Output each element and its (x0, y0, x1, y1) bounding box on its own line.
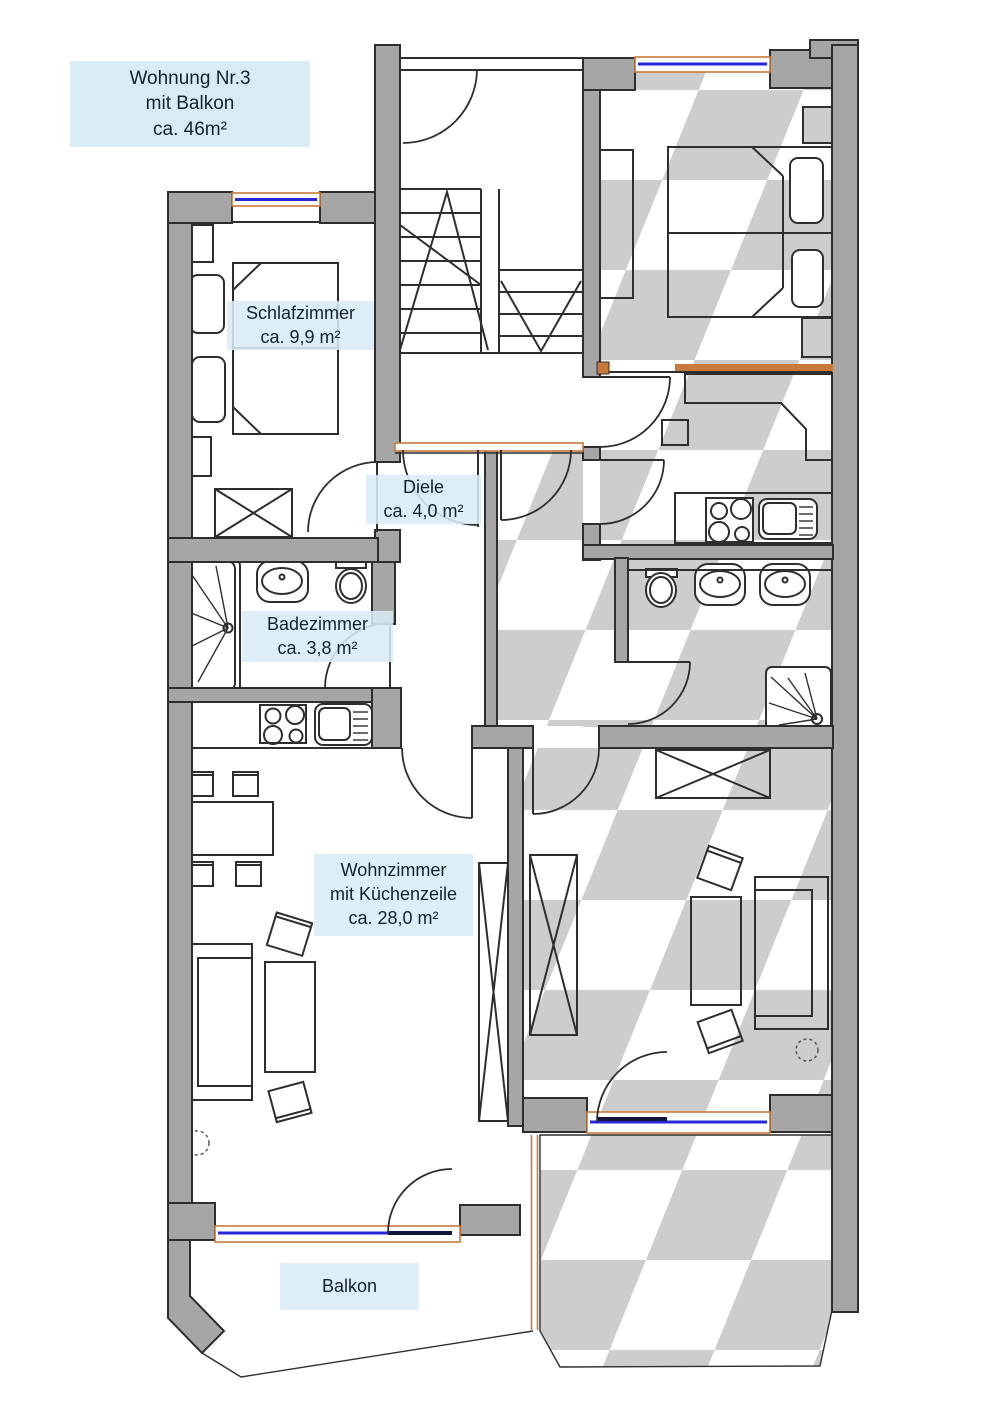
dining-table (180, 802, 273, 855)
toilet (336, 560, 366, 603)
sofa (183, 944, 252, 1100)
shower (766, 667, 831, 732)
room-name: Balkon (322, 1275, 377, 1299)
room-name-line2: mit Küchenzeile (330, 883, 457, 907)
room-name: Diele (403, 476, 444, 500)
room-label-badezimmer: Badezimmer ca. 3,8 m² (242, 611, 393, 662)
pillow (790, 158, 823, 223)
title-line-2: mit Balkon (146, 91, 235, 116)
apartment-divider-wall (485, 449, 497, 728)
room-name: Schlafzimmer (246, 302, 355, 326)
title-line-1: Wohnung Nr.3 (129, 66, 250, 91)
room-area: ca. 9,9 m² (260, 326, 340, 350)
stove (706, 498, 753, 542)
floor-plan: Wohnung Nr.3 mit Balkon ca. 46m² Schlafz… (0, 0, 992, 1403)
neighbor-balcony-window (587, 1112, 770, 1133)
schlafzimmer-bottom-wall (168, 538, 378, 562)
room-label-schlafzimmer: Schlafzimmer ca. 9,9 m² (227, 301, 374, 350)
nightstand (802, 318, 832, 357)
room-area: ca. 3,8 m² (277, 637, 357, 661)
pillow (190, 275, 224, 333)
kitchen-sink (315, 704, 372, 745)
coffee-table (265, 962, 315, 1072)
room-label-wohnzimmer: Wohnzimmer mit Küchenzeile ca. 28,0 m² (314, 854, 473, 936)
apartment-title-box: Wohnung Nr.3 mit Balkon ca. 46m² (70, 61, 310, 147)
stairwell-lintel (395, 443, 583, 453)
title-line-3: ca. 46m² (153, 117, 227, 142)
toilet (646, 569, 677, 607)
neighbor-bedroom-window (635, 57, 770, 72)
stairwell-wall-left (375, 45, 400, 462)
room-area: ca. 28,0 m² (348, 907, 438, 931)
bathroom-sink (257, 561, 308, 602)
stairwell-top-wall (400, 58, 583, 70)
kuechenzeile (185, 702, 375, 748)
room-name: Badezimmer (267, 613, 368, 637)
badezimmer-bottom-wall (168, 688, 372, 702)
kitchen-sink (759, 499, 817, 539)
wardrobe-x-box (215, 489, 292, 537)
balcony-window (215, 1226, 460, 1242)
stove (260, 705, 306, 744)
room-label-diele: Diele ca. 4,0 m² (366, 475, 481, 524)
floor-plan-drawing (0, 0, 992, 1403)
outer-wall-left (168, 192, 192, 1240)
neighbor-balcony (540, 1135, 832, 1367)
livingroom-divider-wall (508, 748, 523, 1126)
pillow (792, 250, 823, 307)
room-area: ca. 4,0 m² (383, 500, 463, 524)
room-name: Wohnzimmer (341, 859, 447, 883)
room-label-balkon: Balkon (280, 1263, 419, 1310)
pillow (192, 357, 225, 422)
outer-wall-right (832, 45, 858, 1312)
stairwell-wall-right (583, 58, 600, 377)
nightstand (803, 107, 832, 143)
